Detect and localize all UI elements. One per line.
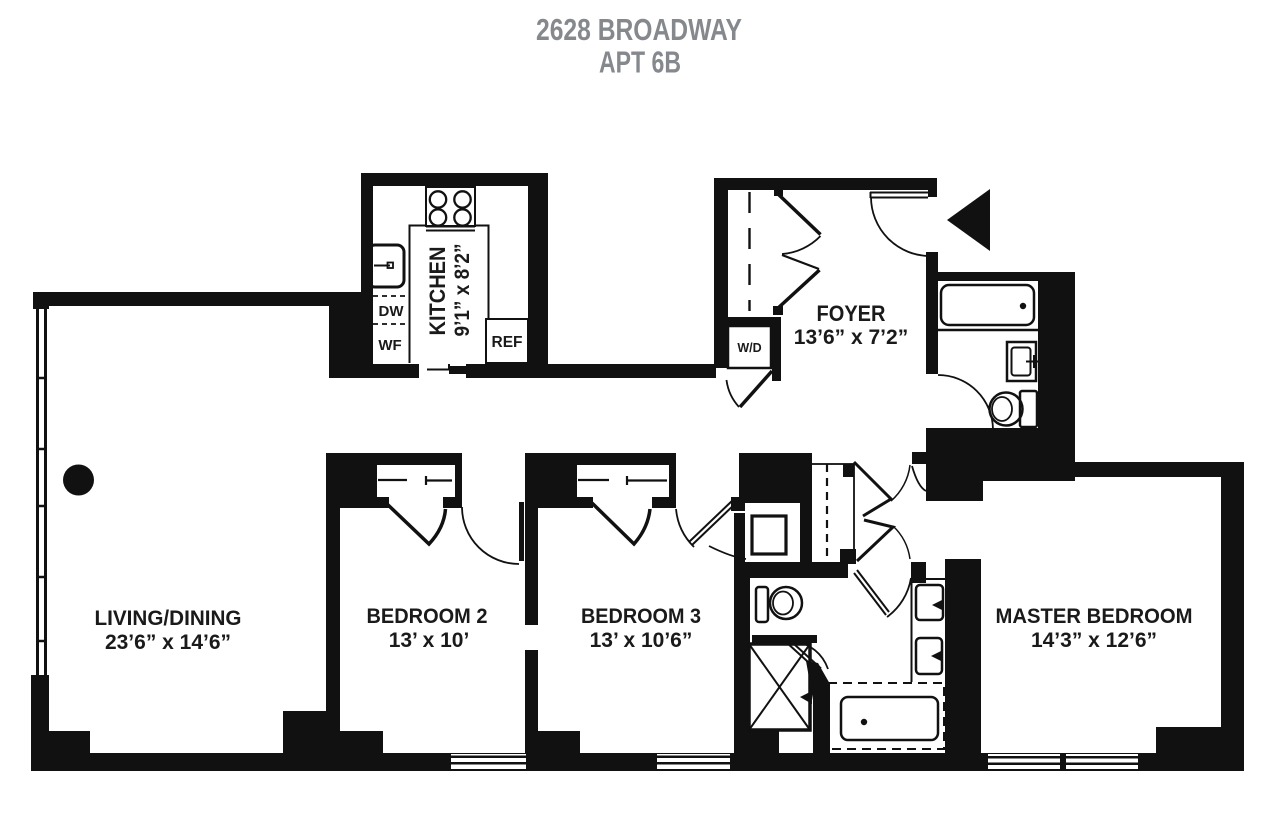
svg-text:2628 BROADWAY: 2628 BROADWAY	[536, 12, 742, 47]
svg-text:KITCHEN: KITCHEN	[425, 247, 450, 336]
svg-text:LIVING/DINING: LIVING/DINING	[95, 606, 242, 630]
svg-text:REF: REF	[492, 334, 523, 351]
svg-text:13’ x 10’6”: 13’ x 10’6”	[590, 629, 693, 652]
svg-text:DW: DW	[379, 303, 405, 320]
svg-text:14’3” x 12’6”: 14’3” x 12’6”	[1031, 629, 1157, 652]
svg-text:APT 6B: APT 6B	[599, 45, 681, 80]
svg-text:WF: WF	[378, 337, 401, 354]
svg-text:FOYER: FOYER	[817, 301, 886, 326]
svg-text:MASTER BEDROOM: MASTER BEDROOM	[996, 604, 1193, 628]
svg-text:23’6” x 14’6”: 23’6” x 14’6”	[105, 631, 231, 654]
svg-text:BEDROOM 3: BEDROOM 3	[581, 604, 701, 628]
svg-text:13’6” x 7’2”: 13’6” x 7’2”	[794, 326, 908, 349]
svg-text:13’ x 10’: 13’ x 10’	[389, 629, 470, 652]
svg-text:9’1” x 8’2”: 9’1” x 8’2”	[451, 244, 474, 337]
svg-text:W/D: W/D	[737, 341, 761, 355]
svg-text:BEDROOM 2: BEDROOM 2	[367, 604, 488, 628]
